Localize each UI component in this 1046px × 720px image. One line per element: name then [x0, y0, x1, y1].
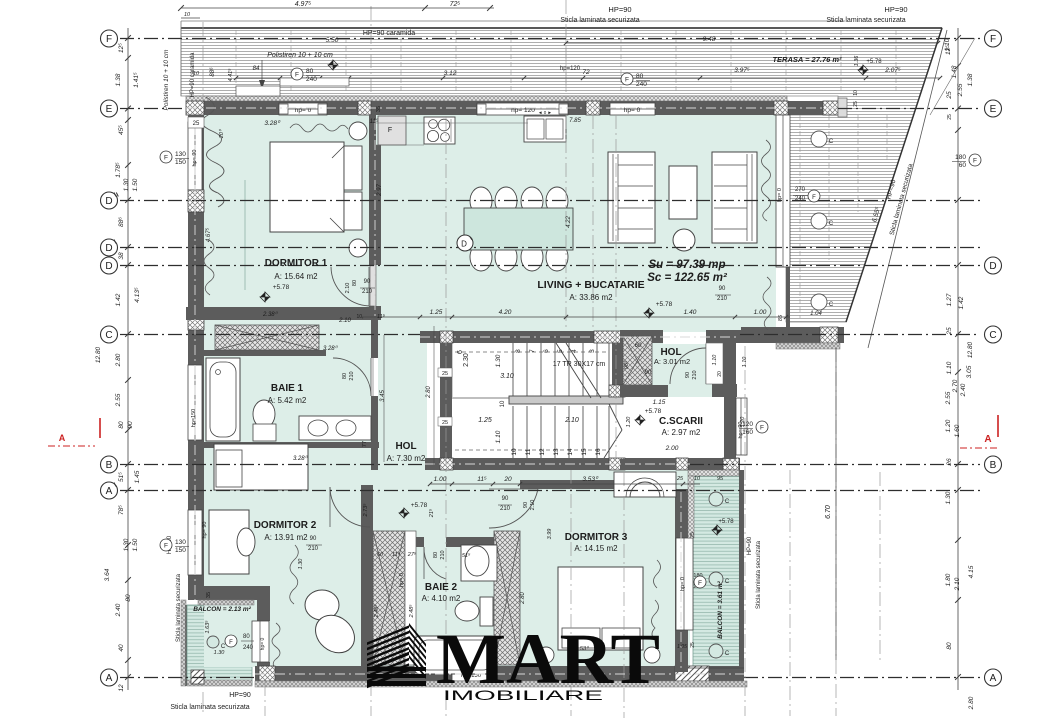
svg-text:1.20: 1.20	[945, 419, 952, 432]
svg-text:BALCON = 2.13 m²: BALCON = 2.13 m²	[193, 606, 251, 613]
svg-text:1.30: 1.30	[945, 491, 952, 504]
svg-text:C: C	[725, 579, 730, 585]
svg-text:4.20: 4.20	[499, 309, 512, 316]
svg-text:F: F	[625, 77, 629, 84]
svg-text:2.73⁵: 2.73⁵	[362, 503, 369, 518]
svg-text:3.28⁰: 3.28⁰	[264, 120, 281, 127]
svg-text:HP=90 caramida: HP=90 caramida	[190, 52, 196, 98]
svg-text:1.04: 1.04	[810, 311, 822, 317]
svg-text:21⁵: 21⁵	[428, 508, 435, 518]
svg-text:D: D	[461, 240, 467, 249]
svg-text:4.67⁵: 4.67⁵	[205, 227, 212, 242]
svg-text:16: 16	[595, 448, 602, 456]
svg-text:3.28⁰: 3.28⁰	[323, 345, 339, 352]
svg-text:90: 90	[645, 370, 652, 376]
svg-text:2.40: 2.40	[115, 603, 122, 617]
svg-text:F: F	[973, 158, 977, 165]
svg-text:20: 20	[503, 476, 512, 483]
svg-text:20: 20	[717, 371, 723, 377]
svg-text:hp= 0: hp= 0	[399, 573, 405, 587]
svg-text:1.10: 1.10	[946, 361, 953, 374]
svg-text:78⁵: 78⁵	[118, 505, 125, 515]
svg-text:11⁵: 11⁵	[477, 476, 487, 483]
svg-text:240: 240	[636, 81, 647, 88]
svg-text:20⁰: 20⁰	[218, 129, 225, 139]
svg-text:1.10: 1.10	[495, 430, 502, 443]
svg-text:2.10: 2.10	[954, 577, 961, 591]
svg-text:Sticla laminata securizata: Sticla laminata securizata	[170, 704, 249, 711]
svg-text:1.30: 1.30	[214, 650, 226, 656]
svg-text:A: 3.01 m2: A: 3.01 m2	[654, 357, 690, 366]
svg-text:90: 90	[127, 421, 134, 429]
svg-text:+5.78: +5.78	[718, 519, 734, 525]
svg-text:90: 90	[310, 536, 317, 542]
svg-text:hp=150: hp=150	[191, 409, 197, 428]
svg-text:84: 84	[253, 66, 260, 72]
svg-text:10: 10	[853, 90, 859, 96]
svg-text:2.10: 2.10	[530, 500, 536, 511]
svg-text:90: 90	[364, 279, 371, 285]
svg-text:10: 10	[500, 400, 506, 407]
svg-text:3.05: 3.05	[966, 365, 973, 378]
svg-text:150: 150	[175, 159, 186, 166]
svg-text:8: 8	[515, 349, 522, 353]
svg-text:F: F	[164, 543, 168, 550]
svg-text:F: F	[760, 425, 764, 432]
svg-text:3.64: 3.64	[104, 568, 111, 581]
svg-text:Sticla laminata securizata: Sticla laminata securizata	[826, 17, 905, 24]
svg-text:D: D	[105, 196, 112, 207]
svg-text:HOL: HOL	[395, 441, 416, 452]
svg-text:1.10: 1.10	[944, 38, 951, 51]
svg-text:1.10: 1.10	[742, 356, 748, 368]
svg-text:F: F	[229, 640, 233, 646]
svg-text:hp= 0: hp= 0	[260, 637, 266, 650]
svg-text:210: 210	[692, 370, 698, 379]
svg-text:3.10: 3.10	[500, 373, 514, 380]
svg-text:hp= 0: hp= 0	[777, 188, 783, 202]
svg-text:12.80: 12.80	[967, 341, 974, 358]
svg-text:B: B	[990, 460, 997, 471]
svg-text:240: 240	[306, 76, 317, 83]
svg-text:72: 72	[582, 69, 590, 76]
svg-text:A: 4.10 m2: A: 4.10 m2	[422, 594, 461, 603]
svg-text:80: 80	[946, 642, 953, 650]
svg-text:240: 240	[243, 645, 254, 651]
svg-text:90: 90	[685, 372, 691, 378]
svg-text:7: 7	[529, 349, 536, 353]
svg-text:1.40: 1.40	[684, 309, 697, 316]
svg-text:D: D	[105, 261, 112, 272]
svg-text:11⁵: 11⁵	[377, 313, 386, 320]
svg-text:Su = 97.39 mp: Su = 97.39 mp	[648, 259, 725, 271]
svg-text:C: C	[725, 499, 730, 505]
svg-text:1.30: 1.30	[298, 558, 304, 570]
svg-text:2.48⁵: 2.48⁵	[408, 604, 415, 619]
svg-text:1.25: 1.25	[430, 309, 443, 316]
svg-text:Polistiren 10 + 10 cm: Polistiren 10 + 10 cm	[163, 49, 170, 110]
svg-text:90: 90	[502, 496, 509, 502]
svg-text:3: 3	[589, 349, 596, 353]
svg-text:B: B	[106, 460, 113, 471]
svg-text:80: 80	[125, 594, 132, 602]
svg-text:12: 12	[118, 684, 125, 692]
svg-text:45⁵: 45⁵	[118, 125, 125, 135]
svg-text:72⁵: 72⁵	[450, 1, 461, 8]
svg-text:2.55: 2.55	[945, 391, 952, 405]
svg-text:80: 80	[433, 552, 439, 558]
svg-text:98⁶: 98⁶	[623, 360, 630, 369]
svg-text:60: 60	[635, 343, 642, 349]
svg-text:DORMITOR 1: DORMITOR 1	[265, 258, 328, 269]
svg-text:1.45: 1.45	[134, 470, 141, 483]
svg-text:210: 210	[362, 289, 373, 295]
svg-text:210: 210	[717, 296, 728, 302]
svg-text:25: 25	[690, 532, 696, 538]
svg-text:A: 14.15 m2: A: 14.15 m2	[574, 544, 618, 553]
svg-text:88⁶: 88⁶	[118, 217, 125, 227]
svg-text:2.38⁰: 2.38⁰	[262, 311, 279, 318]
svg-text:80: 80	[118, 421, 125, 429]
svg-text:180: 180	[955, 154, 966, 161]
svg-text:25: 25	[853, 101, 859, 107]
svg-text:D: D	[989, 261, 996, 272]
svg-text:12⁵: 12⁵	[118, 43, 125, 53]
svg-text:A: 2.97 m2: A: 2.97 m2	[662, 428, 701, 437]
svg-text:90: 90	[523, 502, 529, 508]
svg-text:F: F	[990, 34, 996, 45]
svg-text:A: 13.91 m2: A: 13.91 m2	[264, 533, 308, 542]
svg-text:TERASA = 27.76 m²: TERASA = 27.76 m²	[772, 55, 842, 64]
svg-text:HP=90: HP=90	[747, 536, 753, 555]
svg-text:88⁶: 88⁶	[209, 67, 216, 77]
svg-text:1.25: 1.25	[478, 417, 492, 424]
svg-text:240: 240	[795, 196, 806, 202]
svg-text:1.27: 1.27	[946, 293, 953, 306]
svg-text:C.SCARII: C.SCARII	[659, 416, 703, 427]
svg-text:85: 85	[778, 314, 784, 321]
svg-text:210: 210	[500, 506, 511, 512]
svg-text:3.97⁵: 3.97⁵	[734, 67, 750, 74]
svg-text:2.30: 2.30	[463, 353, 470, 367]
svg-text:6: 6	[543, 349, 550, 353]
svg-text:+5.78: +5.78	[411, 502, 428, 509]
svg-text:77: 77	[362, 441, 368, 447]
svg-text:27⁵: 27⁵	[407, 551, 417, 558]
svg-text:E: E	[106, 104, 113, 115]
svg-text:C: C	[829, 139, 834, 145]
svg-text:A: 33.86 m2: A: 33.86 m2	[569, 293, 613, 302]
svg-text:130: 130	[175, 151, 186, 158]
svg-text:Sticla laminata securizata: Sticla laminata securizata	[560, 17, 639, 24]
svg-text:HP=90: HP=90	[884, 5, 907, 14]
svg-text:C: C	[829, 302, 834, 308]
svg-text:BAIE 2: BAIE 2	[425, 582, 458, 593]
svg-text:25: 25	[946, 327, 953, 336]
svg-text:35: 35	[376, 106, 382, 112]
svg-text:F: F	[812, 195, 816, 201]
svg-text:1.20: 1.20	[626, 416, 632, 428]
svg-text:1.10: 1.10	[712, 354, 718, 366]
svg-text:2.10: 2.10	[564, 417, 579, 424]
svg-text:25: 25	[193, 121, 200, 127]
svg-text:2.80: 2.80	[426, 386, 432, 399]
svg-text:F: F	[698, 580, 702, 587]
svg-text:Sticla laminata securizata: Sticla laminata securizata	[756, 540, 762, 609]
svg-text:13: 13	[553, 448, 560, 456]
svg-text:17 TR 30X17 cm: 17 TR 30X17 cm	[553, 361, 606, 368]
svg-text:51⁵: 51⁵	[462, 552, 471, 559]
svg-text:210: 210	[308, 546, 319, 552]
svg-text:4.97⁵: 4.97⁵	[295, 1, 312, 8]
svg-text:A: A	[106, 486, 113, 497]
svg-text:2.70: 2.70	[952, 379, 959, 393]
svg-text:E: E	[990, 104, 997, 115]
svg-text:hp=120: hp=120	[560, 66, 581, 72]
svg-text:Polistiren 10 + 10 cm: Polistiren 10 + 10 cm	[267, 52, 333, 59]
svg-text:hp= 90: hp= 90	[192, 150, 198, 167]
svg-text:35: 35	[206, 592, 212, 598]
svg-text:3.53⁰: 3.53⁰	[582, 476, 599, 483]
svg-text:4.13⁵: 4.13⁵	[134, 287, 141, 303]
svg-text:12.80: 12.80	[95, 346, 102, 363]
svg-text:A: A	[59, 433, 66, 443]
svg-text:+5.78: +5.78	[645, 408, 662, 415]
svg-text:1.60: 1.60	[954, 424, 961, 437]
svg-text:1.05: 1.05	[677, 644, 687, 650]
svg-text:IMOBILIARE: IMOBILIARE	[443, 687, 603, 703]
svg-text:+5.78: +5.78	[273, 284, 290, 291]
svg-text:80: 80	[243, 634, 250, 640]
svg-text:210: 210	[349, 371, 355, 380]
svg-text:2.97: 2.97	[377, 184, 383, 197]
svg-text:HP=90: HP=90	[608, 5, 631, 14]
svg-text:51⁵: 51⁵	[118, 472, 125, 482]
svg-text:150: 150	[175, 547, 186, 554]
svg-text:11⁵: 11⁵	[370, 118, 379, 125]
svg-text:7.85: 7.85	[569, 118, 581, 124]
svg-text:60: 60	[959, 162, 967, 169]
svg-text:38: 38	[118, 252, 125, 260]
svg-text:210: 210	[440, 550, 446, 559]
svg-text:A: A	[990, 673, 997, 684]
svg-text:130: 130	[175, 539, 186, 546]
svg-text:1.63⁵: 1.63⁵	[204, 620, 211, 634]
svg-text:3.45: 3.45	[380, 390, 386, 402]
svg-text:2.80: 2.80	[115, 353, 122, 367]
svg-text:◄ 0 ►: ◄ 0 ►	[538, 110, 552, 115]
svg-text:4.22: 4.22	[566, 216, 572, 228]
svg-text:F: F	[164, 155, 168, 162]
svg-text:40: 40	[118, 644, 125, 652]
svg-text:1.50: 1.50	[132, 178, 139, 191]
svg-text:10: 10	[694, 476, 701, 482]
svg-text:Sc = 122.65 m²: Sc = 122.65 m²	[647, 272, 728, 284]
svg-text:1.42: 1.42	[115, 293, 122, 306]
svg-text:90: 90	[719, 286, 726, 292]
svg-text:3.12: 3.12	[444, 70, 457, 77]
svg-text:25: 25	[676, 476, 684, 482]
svg-text:6.70: 6.70	[825, 505, 832, 519]
svg-text:60: 60	[377, 552, 384, 558]
svg-text:2.10: 2.10	[345, 283, 351, 294]
svg-text:11: 11	[525, 448, 532, 455]
svg-text:A: A	[106, 673, 113, 684]
svg-text:C: C	[829, 221, 834, 227]
svg-text:HP=90 caramida: HP=90 caramida	[363, 30, 415, 37]
svg-text:F: F	[295, 72, 299, 79]
svg-text:1.78⁵: 1.78⁵	[115, 162, 122, 178]
svg-text:160: 160	[742, 429, 753, 436]
svg-text:2.40: 2.40	[960, 383, 967, 397]
svg-text:2.80: 2.80	[968, 696, 975, 710]
svg-text:hp= 90: hp= 90	[202, 522, 208, 539]
svg-text:1.38: 1.38	[967, 73, 974, 86]
svg-text:2.10: 2.10	[338, 318, 351, 324]
svg-text:2.00: 2.00	[665, 445, 679, 452]
svg-text:25: 25	[946, 91, 953, 100]
svg-text:1.00: 1.00	[434, 476, 447, 483]
svg-text:F: F	[106, 34, 112, 45]
svg-text:2.07⁵: 2.07⁵	[884, 67, 901, 74]
svg-text:C: C	[725, 651, 730, 657]
svg-text:1.48: 1.48	[951, 65, 958, 78]
svg-text:hp= 0: hp= 0	[680, 577, 686, 591]
svg-text:2.80: 2.80	[520, 592, 526, 605]
svg-text:A: 5.42 m2: A: 5.42 m2	[268, 396, 307, 405]
svg-text:10: 10	[511, 448, 518, 456]
svg-text:1.42: 1.42	[958, 296, 965, 309]
svg-text:3.99: 3.99	[547, 529, 553, 540]
svg-text:BAIE 1: BAIE 1	[271, 383, 304, 394]
svg-text:A: 15.64 m2: A: 15.64 m2	[274, 272, 318, 281]
svg-text:F: F	[388, 127, 392, 134]
svg-text:D: D	[105, 243, 112, 254]
svg-text:2.55: 2.55	[957, 83, 964, 97]
svg-text:11⁵: 11⁵	[392, 551, 401, 558]
svg-text:DORMITOR 3: DORMITOR 3	[565, 532, 628, 543]
svg-text:1.41⁵: 1.41⁵	[133, 72, 140, 88]
svg-text:270: 270	[795, 187, 806, 193]
svg-text:25: 25	[690, 642, 696, 648]
svg-text:A: A	[984, 434, 991, 445]
svg-text:1.38: 1.38	[115, 73, 122, 86]
svg-text:C: C	[105, 330, 112, 341]
svg-text:12: 12	[539, 448, 546, 456]
svg-text:95: 95	[717, 476, 724, 482]
svg-text:C: C	[989, 330, 996, 341]
svg-text:14: 14	[567, 448, 574, 456]
svg-text:25: 25	[947, 114, 953, 120]
svg-text:1.15: 1.15	[653, 399, 666, 406]
svg-text:1.00: 1.00	[754, 309, 767, 316]
svg-text:25: 25	[442, 371, 448, 377]
svg-text:5.50: 5.50	[326, 37, 339, 44]
svg-text:3.28⁰: 3.28⁰	[293, 455, 309, 462]
svg-text:1.80: 1.80	[945, 573, 952, 586]
svg-text:1.50: 1.50	[132, 538, 139, 551]
svg-text:4.15: 4.15	[968, 565, 975, 578]
svg-text:DORMITOR 2: DORMITOR 2	[254, 520, 317, 531]
svg-text:120: 120	[742, 421, 753, 428]
svg-text:2.48⁵: 2.48⁵	[373, 604, 380, 619]
svg-text:80: 80	[342, 373, 348, 379]
svg-text:80: 80	[306, 68, 314, 75]
svg-text:9.48: 9.48	[703, 36, 716, 43]
svg-text:4.41⁵: 4.41⁵	[227, 68, 234, 82]
svg-text:HP=90: HP=90	[229, 692, 251, 699]
svg-text:+5.78: +5.78	[866, 59, 882, 65]
svg-text:80: 80	[636, 73, 644, 80]
svg-text:10: 10	[184, 12, 191, 18]
svg-text:1.30: 1.30	[123, 178, 130, 191]
svg-text:+5.78: +5.78	[656, 301, 673, 308]
svg-text:1.30: 1.30	[123, 538, 130, 551]
svg-text:1.30: 1.30	[495, 354, 502, 367]
svg-text:10,: 10,	[357, 314, 364, 320]
svg-text:25: 25	[442, 420, 448, 426]
svg-text:2.55: 2.55	[115, 393, 122, 407]
svg-text:A: 7.30 m2: A: 7.30 m2	[387, 454, 426, 463]
svg-text:80: 80	[352, 280, 358, 286]
svg-text:BALCON = 3.61 m²: BALCON = 3.61 m²	[717, 580, 724, 638]
svg-text:15: 15	[581, 448, 588, 456]
svg-text:26: 26	[946, 458, 953, 467]
svg-text:1.36: 1.36	[854, 55, 860, 67]
svg-text:Sticla laminata securizata: Sticla laminata securizata	[176, 573, 182, 642]
svg-text:LIVING + BUCATARIE: LIVING + BUCATARIE	[537, 279, 644, 291]
